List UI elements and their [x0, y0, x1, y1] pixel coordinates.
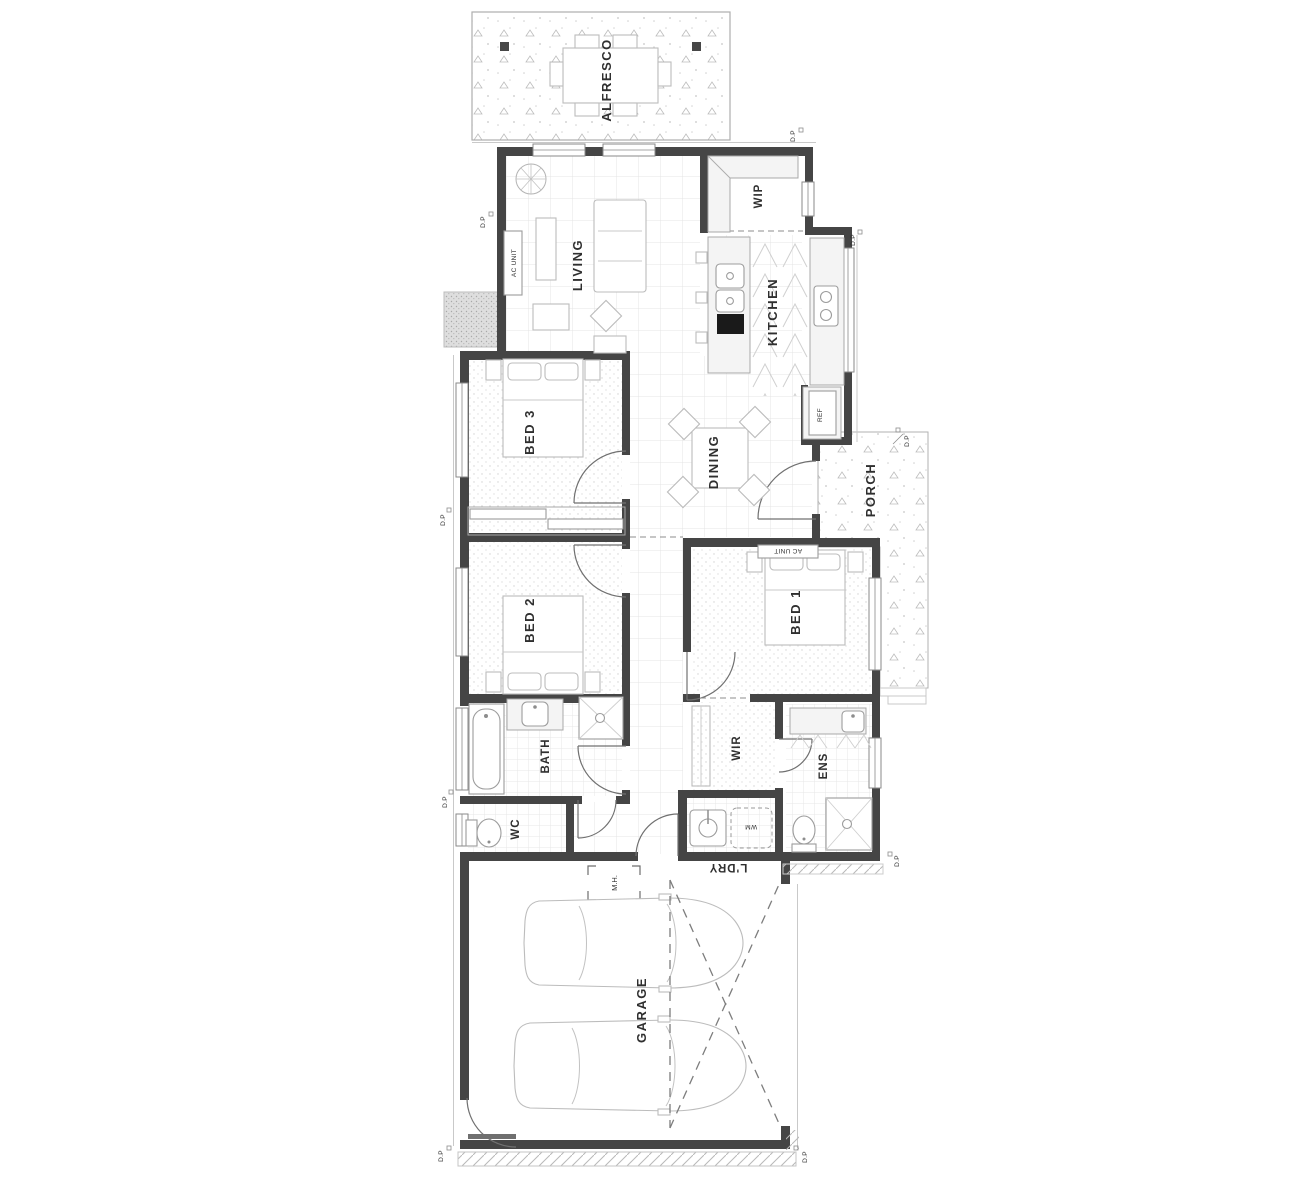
kitchen-cabinet-chevrons	[750, 240, 810, 396]
wc-label: WC	[510, 818, 522, 839]
window	[603, 144, 655, 156]
bath-vanity	[507, 699, 563, 730]
dining-label: DINING	[706, 435, 721, 490]
wip-label: WIP	[753, 184, 765, 209]
dp-marker: D.P	[440, 508, 451, 526]
alfresco-label: ALFRESCO	[599, 38, 614, 122]
svg-text:D.P: D.P	[802, 1151, 809, 1163]
window	[533, 144, 585, 156]
svg-text:D.P: D.P	[850, 234, 857, 246]
wc-fitout	[466, 819, 501, 847]
porch-label: PORCH	[863, 463, 878, 517]
window	[456, 708, 468, 790]
bed2-furniture	[486, 596, 600, 694]
bedside-table	[585, 672, 600, 692]
dp-marker: D.P	[790, 128, 803, 142]
bed2-label: BED 2	[522, 597, 537, 643]
sofa-icon	[594, 200, 646, 292]
svg-text:M.H.: M.H.	[610, 875, 619, 891]
ac-unit-bed1: AC UNIT	[758, 545, 818, 558]
bedside-table	[486, 672, 501, 692]
garage-label: GARAGE	[634, 977, 649, 1043]
porch-step	[888, 696, 926, 704]
door-garage-rear	[467, 1098, 516, 1147]
dp-marker: D.P	[480, 212, 493, 228]
wir-label: WIR	[731, 735, 743, 760]
floor-plan-drawing: ALFRESCO PORCH	[0, 0, 1300, 1180]
bathtub-icon	[469, 704, 504, 794]
window	[456, 383, 468, 477]
kitchen-label: KITCHEN	[765, 278, 780, 346]
svg-text:D.P: D.P	[440, 514, 447, 526]
bedside-table	[848, 552, 863, 572]
svg-text:AC UNIT: AC UNIT	[774, 547, 802, 554]
svg-text:AC UNIT: AC UNIT	[511, 249, 518, 277]
dp-marker: D.P	[888, 852, 901, 867]
car-icon	[514, 1016, 746, 1115]
bench-sink-icon	[814, 286, 838, 326]
alfresco-post	[692, 42, 701, 51]
living-label: LIVING	[570, 239, 585, 291]
floor-plan-page: ALFRESCO PORCH	[0, 0, 1300, 1180]
window	[869, 578, 881, 670]
ens-label: ENS	[818, 753, 830, 780]
manhole-marker: M.H.	[588, 866, 640, 900]
svg-text:D.P: D.P	[894, 855, 901, 867]
armchair-icon	[533, 304, 569, 330]
svg-text:D.P: D.P	[480, 216, 487, 228]
shower-bath	[579, 697, 623, 739]
dp-marker: D.P	[442, 790, 453, 808]
svg-text:REF: REF	[817, 408, 824, 422]
shower-ens	[826, 798, 872, 850]
svg-text:D.P: D.P	[438, 1150, 445, 1162]
window	[869, 738, 881, 788]
laundry-tub-icon	[690, 810, 726, 846]
stool	[696, 252, 707, 263]
plant-icon	[516, 164, 546, 194]
svg-text:D.P: D.P	[442, 796, 449, 808]
svg-text:WM: WM	[745, 823, 757, 830]
bedside-table	[486, 360, 501, 380]
toilet-icon	[466, 819, 501, 847]
window	[802, 182, 814, 216]
fridge-space: REF	[803, 387, 841, 439]
island-sink-icon	[716, 264, 744, 334]
tv-unit-icon	[536, 218, 556, 280]
concrete-pad	[444, 292, 499, 347]
bed3-label: BED 3	[522, 409, 537, 455]
toilet-ens-icon	[792, 816, 816, 852]
bed1-label: BED 1	[788, 589, 803, 635]
window	[456, 568, 468, 656]
alfresco-area: ALFRESCO	[472, 12, 730, 140]
svg-text:D.P: D.P	[790, 130, 797, 142]
armchair-icon	[594, 336, 626, 353]
ac-unit-living: AC UNIT	[504, 231, 522, 295]
stool	[696, 332, 707, 343]
alfresco-post	[500, 42, 509, 51]
porch-step	[880, 688, 926, 696]
bedside-table	[585, 360, 600, 380]
dp-marker: D.P	[438, 1146, 451, 1162]
bath-label: BATH	[540, 738, 552, 773]
stool	[696, 292, 707, 303]
ldry-label: L'DRY	[709, 861, 748, 873]
svg-text:D.P: D.P	[904, 435, 911, 447]
